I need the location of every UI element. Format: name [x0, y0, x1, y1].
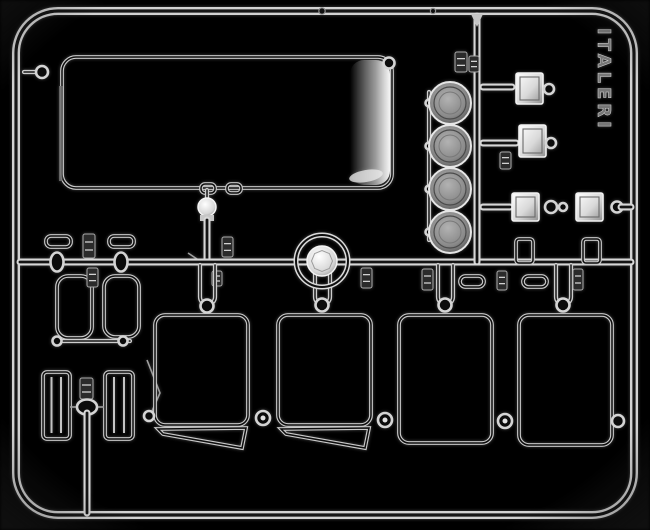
louvered-step-part [105, 372, 133, 439]
small-window-part [104, 276, 139, 337]
windshield-gate-ring [384, 58, 395, 69]
runner-junction [471, 14, 483, 27]
windshield-part [62, 57, 392, 188]
dome-lamp-part [198, 198, 216, 216]
pane-link-ring [612, 415, 624, 427]
sprue-svg: ITALERI [0, 0, 650, 530]
part-number-tag [497, 271, 507, 290]
small-tab-part [46, 236, 71, 247]
link-highlight [383, 418, 388, 423]
part-number-tag [83, 234, 95, 258]
door-window-part [519, 315, 612, 445]
part-number-tag [87, 268, 98, 287]
door-window-part [519, 315, 612, 445]
part-number-tag [455, 52, 467, 72]
small-tab-part [109, 236, 134, 247]
headlight-lens-part [429, 125, 471, 167]
part-number-tag [222, 237, 233, 257]
part-number-tag [361, 268, 372, 288]
sprue-embossed-text: ITALERI [593, 28, 614, 132]
bar-end-ring [53, 337, 62, 346]
sprue-photo: Photograph of a clear transparent inject… [0, 0, 650, 530]
pill-lens-part [523, 276, 547, 287]
windshield-edge-highlight [350, 60, 390, 185]
part-number-tag [573, 269, 583, 290]
frame-nub [319, 8, 325, 14]
door-window-part [399, 315, 492, 443]
side-window-part [278, 315, 371, 425]
vent-window-part [281, 428, 369, 448]
headlight-lens-part [429, 211, 471, 253]
headlight-lens-part [429, 168, 471, 210]
chain-link-ring [545, 201, 557, 213]
louvered-step-part [43, 372, 70, 439]
bar-end-ring [119, 337, 128, 346]
lamp-pin-ring [546, 138, 556, 148]
side-window-part [155, 315, 248, 425]
sprue-parts-group: ITALERI [0, 0, 650, 530]
link-highlight [261, 416, 266, 421]
runner-connector [115, 253, 128, 272]
runner-connector [51, 253, 64, 272]
pill-lens-part [460, 276, 484, 287]
vent-window-part [158, 428, 246, 448]
small-window-part [104, 276, 139, 337]
pane-top-ring [439, 299, 452, 312]
pane-top-ring [201, 300, 214, 313]
part-number-tag [500, 152, 511, 169]
side-window-part [155, 315, 248, 425]
frame-nub [430, 8, 435, 13]
windshield-gate-ring [36, 66, 48, 78]
part-number-tag [422, 269, 433, 290]
pane-top-ring [557, 299, 570, 312]
louvered-step-part [43, 372, 70, 439]
link-highlight [503, 419, 508, 424]
side-window-part [278, 315, 371, 425]
windshield-left-edge [59, 86, 63, 181]
part-number-tag [80, 378, 93, 399]
part-number-tag [469, 56, 479, 72]
pane-link-ring [144, 411, 154, 421]
headlight-lens-part [429, 82, 471, 124]
louvered-step-part [105, 372, 133, 439]
lamp-pin-ring [544, 84, 554, 94]
windshield-part [62, 57, 392, 188]
door-window-part [399, 315, 492, 443]
pane-top-ring [316, 299, 329, 312]
chain-link-ring [559, 203, 567, 211]
